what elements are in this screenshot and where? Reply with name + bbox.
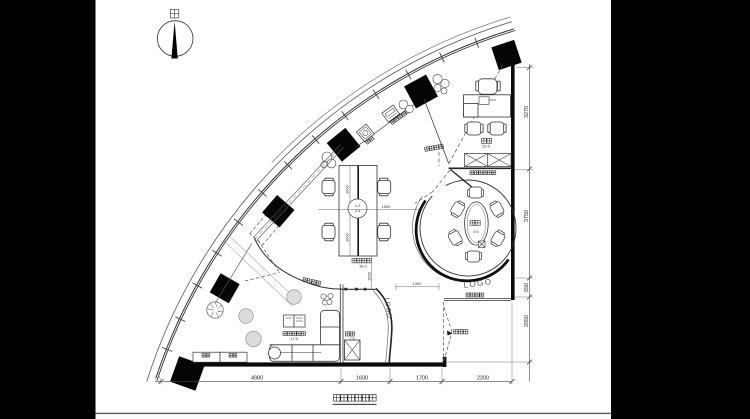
- svg-text:1600: 1600: [345, 232, 350, 242]
- svg-text:3750: 3750: [524, 210, 530, 222]
- svg-text:3270: 3270: [524, 106, 530, 118]
- svg-text:4980: 4980: [251, 376, 263, 382]
- svg-text:1600: 1600: [356, 376, 368, 382]
- svg-text:LOGO: LOGO: [383, 297, 392, 318]
- svg-text:2200: 2200: [477, 376, 489, 382]
- svg-text:7.5: 7.5: [350, 337, 355, 341]
- svg-text:1500: 1500: [382, 204, 392, 209]
- svg-text:1.2: 1.2: [355, 204, 360, 208]
- svg-text:9.5: 9.5: [473, 229, 479, 234]
- svg-text:LOGO: LOGO: [463, 277, 493, 290]
- svg-text:1300: 1300: [413, 281, 423, 286]
- svg-text:15.5: 15.5: [482, 144, 491, 149]
- svg-text:1500: 1500: [367, 271, 372, 281]
- svg-text:550: 550: [524, 283, 530, 292]
- svg-text:17.5: 17.5: [290, 337, 297, 341]
- svg-text:1600: 1600: [345, 184, 350, 194]
- svg-text:2050: 2050: [524, 315, 530, 327]
- svg-text:1700: 1700: [416, 376, 428, 382]
- svg-text:38.0: 38.0: [359, 265, 366, 269]
